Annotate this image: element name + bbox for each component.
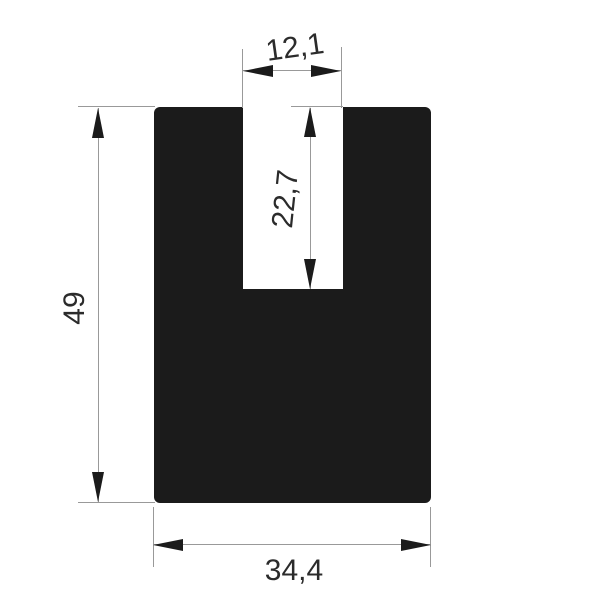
width-dimension-line <box>153 544 431 545</box>
height-extension-line-top <box>78 106 155 107</box>
overall-height-label: 49 <box>60 291 90 324</box>
slot-depth-arrowhead-up-icon <box>304 107 316 137</box>
height-dimension-line <box>98 108 99 502</box>
slot-width-extension-line-right <box>341 47 342 108</box>
slot-depth-arrowhead-down-icon <box>304 259 316 289</box>
slot-width-arrowhead-right-icon <box>311 65 341 77</box>
slot-width-label: 12,1 <box>264 29 326 67</box>
slot-depth-top-reference-line <box>291 106 343 107</box>
width-arrowhead-right-icon <box>401 539 431 551</box>
height-arrowhead-up-icon <box>92 108 104 138</box>
technical-drawing-canvas: 49 12,1 22,7 34,4 <box>0 0 600 600</box>
slot-width-extension-line-left <box>242 49 243 108</box>
width-extension-line-right <box>430 507 431 567</box>
slot-depth-label: 22,7 <box>268 168 304 229</box>
width-arrowhead-left-icon <box>153 539 183 551</box>
height-arrowhead-down-icon <box>92 472 104 502</box>
overall-width-label: 34,4 <box>265 556 323 586</box>
height-extension-line-bottom <box>78 502 155 503</box>
width-extension-line-left <box>153 507 154 567</box>
